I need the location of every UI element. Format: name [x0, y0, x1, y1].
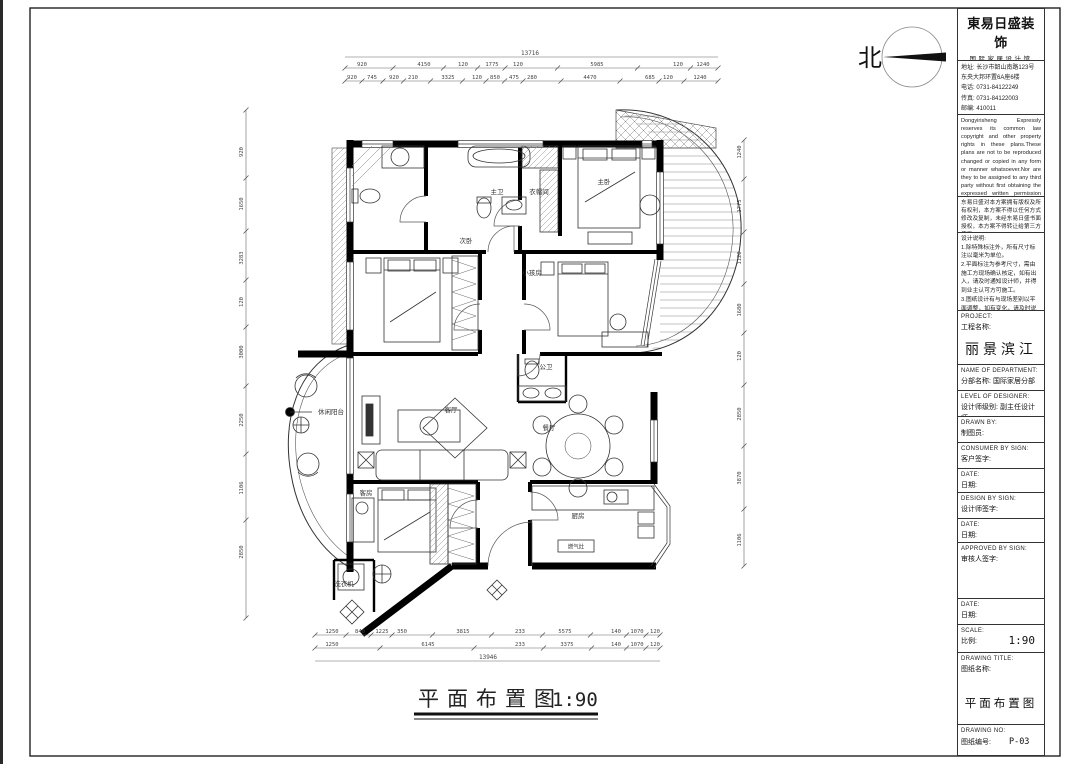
dim-label: 920 — [389, 75, 399, 81]
title-block: 東易日盛装饰 国际家居设计馆 东易日盛家居装饰集团股份有限公司 地址: 长沙市韶… — [957, 8, 1045, 756]
dim-label: 920 — [347, 75, 357, 81]
dim-label: 1775 — [485, 62, 498, 68]
design-notes: 设计说明: 1.除特殊标注外，所有尺寸标注以毫米为单位。 2.平面标注为参考尺寸… — [958, 233, 1044, 311]
room-label: 客房 — [360, 488, 373, 497]
room-label: 衣帽间 — [529, 187, 549, 196]
project-name: 丽景滨江 — [961, 339, 1041, 359]
dim-label: 3283 — [239, 251, 245, 264]
dim-label: 1106 — [239, 481, 245, 494]
dim-label: 120 — [737, 351, 743, 361]
dim-label: 1250 — [325, 642, 338, 648]
dim-label: 140 — [611, 629, 621, 635]
dim-label: 1775 — [737, 199, 743, 212]
logo-subtitle: 国际家居设计馆 — [961, 53, 1041, 61]
dim-label: 233 — [515, 642, 525, 648]
dim-label: 140 — [611, 642, 621, 648]
field-approved-sign: APPROVED BY SIGN: 审核人签字: — [958, 543, 1044, 599]
scale-value: 1:90 — [1009, 634, 1036, 647]
dim-label: 350 — [397, 629, 407, 635]
north-arrow: 北 — [858, 27, 946, 87]
dim-label: 233 — [515, 629, 525, 635]
dim-label: 5985 — [590, 62, 603, 68]
footer-scale-text: 1:90 — [552, 689, 598, 711]
dim-label: 120 — [239, 297, 245, 307]
address-line: 东央大邦环置6A座6楼 — [961, 73, 1041, 83]
room-label: 主卫 — [491, 187, 505, 196]
dim-label: 120 — [650, 629, 660, 635]
room-label: 小孩房 — [522, 268, 542, 277]
dim-label: 3375 — [560, 642, 573, 648]
dim-label: 1120 — [737, 251, 743, 264]
dim-label: 280 — [527, 75, 537, 81]
dim-label: 3815 — [456, 629, 469, 635]
dim-label: 2850 — [737, 407, 743, 420]
room-label: 休闲阳台 — [318, 407, 344, 416]
dim-label: 1070 — [630, 629, 643, 635]
dim-label: 120 — [663, 75, 673, 81]
room-label: 次卧 — [460, 236, 474, 245]
field-designer-level: LEVEL OF DESIGNER: 设计师级别:副主任设计师 — [958, 391, 1044, 417]
scan-edge — [0, 0, 3, 764]
dim-bottom-total: 13946 — [479, 654, 497, 661]
drawing-sheet: 燃气灶 13716 13946 920415012017751205985120… — [0, 0, 1080, 764]
room-label: 客厅 — [445, 405, 459, 414]
dim-label: 1106 — [737, 533, 743, 546]
north-needle-icon — [883, 53, 946, 62]
room-label: 公卫 — [540, 363, 554, 371]
address-line: 邮编: 410011 — [961, 104, 1041, 114]
room-label: 餐厅 — [543, 423, 557, 432]
dim-label: 210 — [408, 75, 418, 81]
footer-title: 平面布置图 1:90 — [414, 688, 598, 719]
balcony-hatch — [288, 110, 741, 570]
dim-label: 1240 — [737, 145, 743, 158]
field-project: PROJECT: 工程名称: 丽景滨江 — [958, 311, 1044, 365]
logo-block: 東易日盛装饰 国际家居设计馆 东易日盛家居装饰集团股份有限公司 — [958, 9, 1044, 61]
dim-label: 1240 — [693, 75, 706, 81]
address-line: 电话: 0731-84122249 — [961, 83, 1041, 93]
dim-label: 3870 — [737, 471, 743, 484]
room-label: 厨房 — [572, 511, 585, 520]
drawing-no-value: P-03 — [1009, 737, 1029, 747]
address-block: 地址: 长沙市韶山南路123号 东央大邦环置6A座6楼 电话: 0731-841… — [958, 61, 1044, 115]
dim-label: 120 — [513, 62, 523, 68]
dim-label: 850 — [490, 75, 500, 81]
address-line: 传真: 0731-84122003 — [961, 94, 1041, 104]
sheet-frame — [30, 8, 1060, 756]
company-logo: 東易日盛装饰 — [961, 13, 1041, 51]
dim-label: 3325 — [441, 75, 454, 81]
field-drawing-no: DRAWING NO: 图纸编号:P-03 — [958, 725, 1044, 755]
dim-label: 120 — [472, 75, 482, 81]
dim-label: 1650 — [239, 197, 245, 210]
field-consumer-sign: CONSUMER BY SIGN: 客户签字: — [958, 443, 1044, 469]
dim-label: 120 — [458, 62, 468, 68]
dim-label: 2850 — [239, 545, 245, 558]
field-drawing-title: DRAWING TITLE: 图纸名称: 平面布置图 — [958, 653, 1044, 725]
dim-label: 120 — [650, 642, 660, 648]
drawing-title-value: 平面布置图 — [961, 695, 1041, 711]
field-date-3: DATE: 日期: — [958, 599, 1044, 625]
dim-label: 4150 — [417, 62, 430, 68]
dim-label: 840 — [355, 629, 365, 635]
dim-label: 1680 — [737, 303, 743, 316]
field-design-sign: DESIGN BY SIGN: 设计师签字: — [958, 493, 1044, 519]
dim-label: 2250 — [239, 413, 245, 426]
dim-label: 1070 — [630, 642, 643, 648]
dim-label: 5575 — [558, 629, 571, 635]
dim-label: 1250 — [325, 629, 338, 635]
legal-en: Dongyirisheng Expressly reserves its com… — [958, 115, 1044, 197]
dim-label: 1240 — [696, 62, 709, 68]
dim-label: 3000 — [239, 345, 245, 358]
dim-label: 6145 — [421, 642, 434, 648]
dim-label: 685 — [645, 75, 655, 81]
room-label: 主卧 — [598, 177, 612, 186]
dim-label: 4470 — [583, 75, 596, 81]
north-label: 北 — [858, 45, 882, 72]
dim-top-total: 13716 — [521, 50, 539, 57]
room-label: 洗衣机 — [334, 579, 354, 588]
dim-label: 920 — [239, 147, 245, 157]
legal-cn: 东易日盛对本方案拥有版权及所有权利，本方案不得以任何方式修改及复制，未经东易日盛… — [958, 197, 1044, 233]
field-date-1: DATE: 日期: — [958, 469, 1044, 493]
dim-label: 1225 — [375, 629, 388, 635]
field-drawn-by: DRAWN BY: 制图员: — [958, 417, 1044, 443]
footer-title-text: 平面布置图 — [418, 688, 563, 711]
field-department: NAME OF DEPARTMENT: 分部名称:国际家居分部 — [958, 365, 1044, 391]
field-date-2: DATE: 日期: — [958, 519, 1044, 543]
address-line: 地址: 长沙市韶山南路123号 — [961, 63, 1041, 73]
dim-label: 745 — [367, 75, 377, 81]
dim-label: 120 — [673, 62, 683, 68]
floorplan-canvas: 燃气灶 13716 13946 920415012017751205985120… — [0, 0, 1080, 764]
field-scale: SCALE: 比例: 1:90 — [958, 625, 1044, 653]
stove-label: 燃气灶 — [568, 543, 585, 551]
dim-label: 475 — [509, 75, 519, 81]
dim-label: 920 — [357, 62, 367, 68]
